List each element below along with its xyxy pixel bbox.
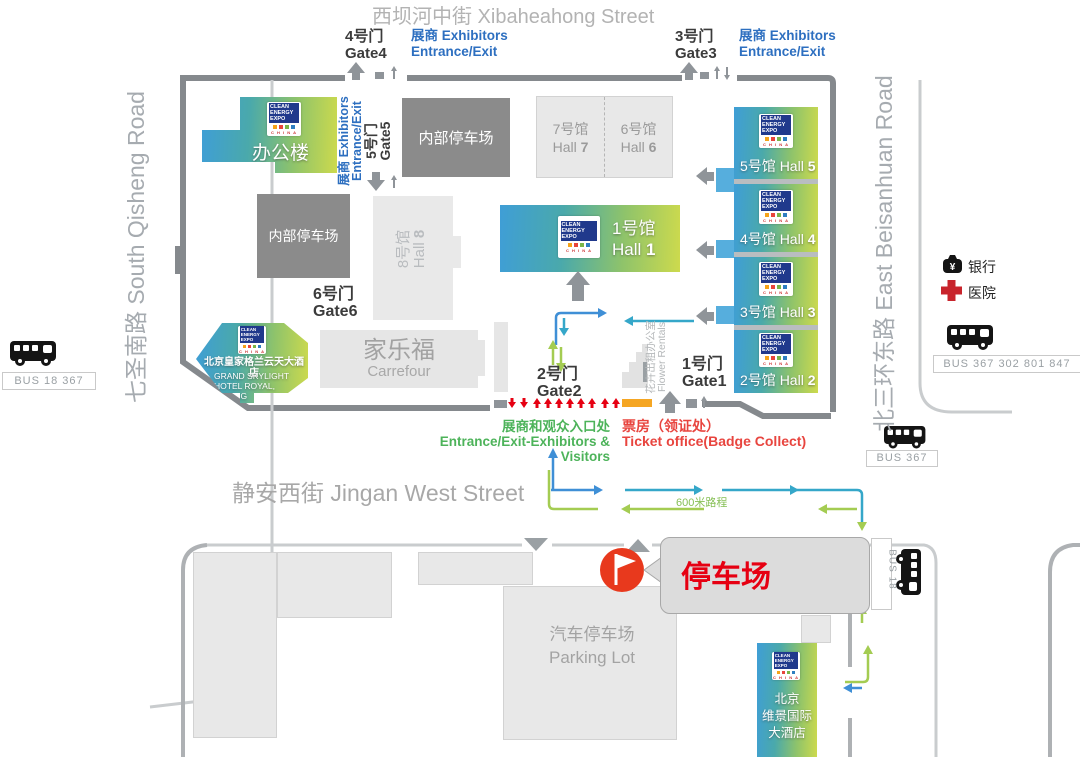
bus-icon [947,325,993,350]
parking-callout-label: 停车场 [681,552,771,596]
street-name-top: 西坝河中街 Xibaheahong Street [372,0,654,29]
grand-skylight-label-en1: GRAND SKYLIGHT [204,371,304,381]
bus-stop-label-east: BUS 367 302 801 847 [933,355,1080,373]
expo-venue-map: 办公楼 CLEANENERGYEXPOC H I N A 内部停车场 内部停车场… [0,0,1080,757]
hall-4-label: 4号馆 Hall 4 [740,229,816,249]
ticket-office-label: 票房（领证处）Ticket office(Badge Collect) [622,419,806,449]
svg-text:¥: ¥ [950,262,956,273]
red-cross-icon [941,280,962,301]
gate1-label: 1号门Gate1 [682,356,726,390]
clean-energy-expo-logo: CLEANENERGYEXPOC H I N A [759,333,793,367]
clean-energy-expo-logo: CLEANENERGYEXPOC H I N A [238,326,266,354]
flower-rentals-label: 花卉出租办公室Flower Rentals [646,318,668,396]
clean-energy-expo-logo: CLEANENERGYEXPOC H I N A [267,102,301,136]
internal-parking-label: 内部停车场 [269,226,339,246]
internal-parking-lot-north: 内部停车场 [402,98,510,177]
south-building [193,552,277,738]
hall-8-label: 8号馆 Hall 8 [396,221,428,277]
bank-label: 银行 [968,257,996,277]
gate2-side-strip [494,322,508,392]
parking-callout: 停车场 [660,537,870,614]
carrefour-label-en: Carrefour [367,363,430,380]
street-name-right: 北三环东路 East Beisanhuan Road [865,88,899,432]
hall-7-6-building: 7号馆 Hall 7 6号馆 Hall 6 [536,96,673,178]
hall-3-label: 3号馆 Hall 3 [740,302,816,322]
gate4-label: 4号门Gate4 [345,28,387,62]
grand-view-hotel-label: 北京 维景国际 大酒店 [757,691,817,742]
clean-energy-expo-logo: CLEANENERGYEXPOC H I N A [759,262,793,296]
car-parking-lot-building: 汽车停车场 Parking Lot [503,586,677,740]
south-building [277,552,392,618]
south-small-building [801,615,831,643]
clean-energy-expo-logo: CLEANENERGYEXPOC H I N A [772,652,800,680]
hospital-label: 医院 [968,283,996,303]
street-name-left: 七圣南路 South Qisheng Road [117,81,151,413]
office-building-label: 办公楼 [252,138,309,165]
hall-2-label: 2号馆 Hall 2 [740,370,816,390]
gate4-exhibitor-entrance-label: 展商 ExhibitorsEntrance/Exit [411,28,508,60]
wall-notch [175,246,183,274]
gate5-exhibitor-entrance-label: 展商 ExhibitorsEntrance/Exit 5号门Gate5 [338,88,392,194]
gate3-exhibitor-entrance-label: 展商 ExhibitorsEntrance/Exit [739,28,836,60]
carrefour-label-cn: 家乐福 [363,338,435,363]
gate3-label: 3号门Gate3 [675,28,717,62]
ticket-office-bar [622,399,652,407]
hall-8-annex [453,236,461,268]
hall-7: 7号馆 Hall 7 [537,97,605,177]
grand-skylight-label-en2: HOTEL ROYAL, BEIJING [204,381,304,401]
car-parking-lot-label: 汽车停车场 Parking Lot [522,623,662,669]
bus-icon-vertical [896,549,921,595]
clean-energy-expo-logo: CLEANENERGYEXPOC H I N A [759,190,793,224]
south-building [418,552,533,585]
visitor-entrance-label: 展商和观众入口处Entrance/Exit-Exhibitors & Visit… [418,419,610,464]
internal-parking-lot-west: 内部停车场 [257,194,350,278]
street-name-bottom: 静安西街 Jingan West Street [232,474,524,508]
internal-parking-label: 内部停车场 [418,127,493,148]
clean-energy-expo-logo: CLEANENERGYEXPOC H I N A [558,216,600,258]
gate2-label: 2号门Gate2 [537,366,581,400]
curb-gap-triangle-down [524,538,548,551]
hall-1-label: 1号馆 Hall 1 [612,218,656,260]
route-distance-label: 600米路程 [676,494,727,510]
bus-icon [10,341,56,366]
bus-stop-label-gate: BUS 367 [866,450,938,467]
bus-stop-label-south: BUS 18 [871,538,892,610]
hall-6: 6号馆 Hall 6 [605,97,672,177]
hall-6-label-cn: 6号馆 [621,119,657,139]
gate6-label: 6号门Gate6 [313,286,357,320]
wall-stub [494,400,507,408]
carrefour-building: 家乐福 Carrefour [320,330,478,388]
bank-icon: ¥ [943,255,962,273]
bus-stop-label-west: BUS 18 367 [2,372,96,390]
carrefour-annex [478,340,485,376]
hall-7-label-cn: 7号馆 [553,119,589,139]
hall-5-label: 5号馆 Hall 5 [740,156,816,176]
clean-energy-expo-logo: CLEANENERGYEXPOC H I N A [759,114,793,148]
